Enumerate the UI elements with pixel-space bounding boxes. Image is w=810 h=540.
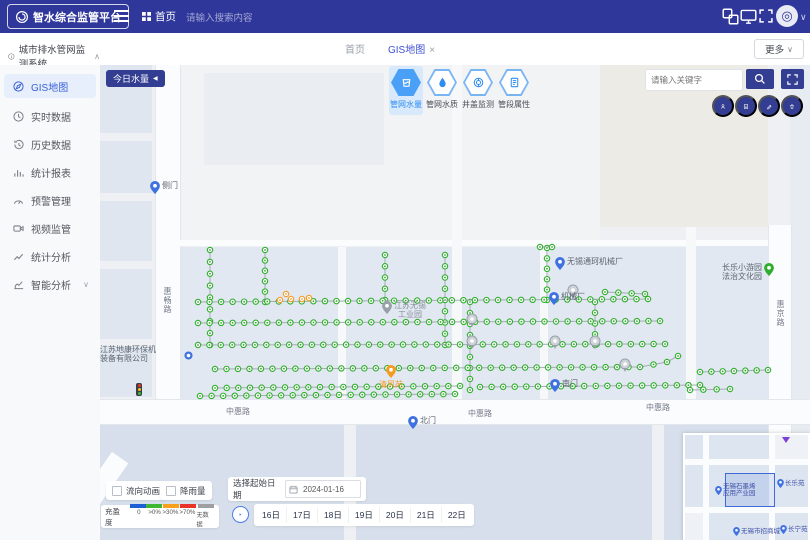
map-marker-label: 北门 <box>420 416 436 425</box>
day-button[interactable]: 16日 <box>256 507 287 523</box>
close-icon[interactable]: × <box>429 45 435 56</box>
sidebar-item-gis-map[interactable]: GIS地图 <box>4 74 96 98</box>
history-icon <box>13 139 24 150</box>
date-value-input[interactable] <box>301 484 357 495</box>
pipe-attribute-icon <box>508 76 521 89</box>
map-marker[interactable]: 清风苑 <box>379 365 403 389</box>
legend-item: 无数据 <box>196 504 215 529</box>
app-window: 智水综合监管平台 首页 请输入搜索内容 ◎ ∨ 城市排水管网监测系统 ∧ 首页 <box>0 0 810 540</box>
map-marker[interactable]: 江苏无锡工业园 <box>382 301 426 319</box>
road-label: 中惠路 <box>646 402 670 413</box>
rainfall-toggle[interactable]: 降雨量 <box>160 481 212 500</box>
play-icon <box>239 511 242 518</box>
keyword-search-input[interactable] <box>646 70 742 90</box>
info-icon <box>8 52 15 61</box>
water-level-icon <box>400 76 413 89</box>
map-marker[interactable]: 长乐小游园法治文化园 <box>722 263 774 281</box>
checkbox-icon[interactable] <box>166 486 176 496</box>
map-marker-label: 江苏无锡工业园 <box>394 301 426 319</box>
sidebar-item-statistics-analysis[interactable]: 统计分析 <box>4 244 96 268</box>
minimap-poi: 长宁苑 <box>780 525 808 534</box>
start-date-picker: 选择起始日期 <box>228 477 366 501</box>
map-block <box>709 435 769 459</box>
sidebar-item-warning-management[interactable]: 预警管理 <box>4 188 96 212</box>
map-marker[interactable]: 南门 <box>550 379 578 392</box>
map-marker-label: 清风苑 <box>379 380 403 389</box>
line-chart-icon <box>13 251 24 262</box>
sidebar-item-video-surveillance[interactable]: 视频监管 <box>4 216 96 240</box>
keyword-search-box <box>645 69 743 91</box>
minimap-poi: 长乐苑 <box>777 479 805 488</box>
road-horizontal <box>685 507 808 513</box>
checkbox-icon[interactable] <box>112 486 122 496</box>
minimap-poi: 无锡市招商城 <box>733 527 780 536</box>
sidebar-item-smart-analysis[interactable]: 智能分析 ∨ <box>4 272 96 296</box>
calendar-icon <box>289 485 298 494</box>
day-button[interactable]: 19日 <box>349 507 380 523</box>
flow-animation-toggle[interactable]: 流向动画 <box>106 481 166 500</box>
legend-item: 0 <box>130 504 146 529</box>
person-pin-icon <box>720 101 726 112</box>
sidebar-item-statistics-report[interactable]: 统计报表 <box>4 160 96 184</box>
apps-icon[interactable] <box>722 8 739 25</box>
play-timeline-button[interactable] <box>232 506 249 523</box>
map-marker-label: 南门 <box>562 379 578 388</box>
map-fullscreen-button[interactable] <box>781 69 804 89</box>
sidebar-item-realtime-data[interactable]: 实时数据 <box>4 104 96 128</box>
map-marker-label: 侧门 <box>162 181 178 190</box>
legend-item: >0% <box>146 504 162 529</box>
tab-home[interactable]: 首页 <box>345 41 365 56</box>
map-marker-label: 机械厂 <box>561 292 585 301</box>
expand-icon <box>787 74 798 85</box>
map-marker[interactable]: 北门 <box>408 416 436 429</box>
nav-home[interactable]: 首页 <box>142 9 176 24</box>
layer-manhole-monitor-button[interactable]: 井盖监测 <box>461 66 495 115</box>
edit-tool-button[interactable] <box>758 95 780 117</box>
global-search-input[interactable]: 请输入搜索内容 <box>186 10 296 24</box>
keyword-search-button[interactable] <box>746 69 774 89</box>
date-input[interactable] <box>285 480 361 498</box>
layer-toolbar: 管网水量 管网水质 井盖监测 管段属性 <box>389 66 531 115</box>
tab-bar: 城市排水管网监测系统 ∧ 首页 GIS地图× <box>0 33 810 66</box>
map-marker[interactable]: 机械厂 <box>549 292 585 305</box>
map-marker-label: 江苏地康环保机装备有限公司 <box>100 345 156 363</box>
layer-pipe-attribute-button[interactable]: 管段属性 <box>497 66 531 115</box>
logo-icon <box>15 10 29 24</box>
today-water-button[interactable]: 今日水量 <box>106 70 165 87</box>
sidebar-nav: GIS地图 实时数据 历史数据 统计报表 预警管理 视频监管 统计分析 智能分 <box>0 65 101 540</box>
gauge-alert-icon <box>13 195 24 206</box>
water-quality-icon <box>436 76 449 89</box>
map-marker[interactable]: 无锡通珂机械厂 <box>555 257 623 270</box>
menu-toggle-icon[interactable] <box>114 10 129 22</box>
map-block <box>685 465 703 507</box>
gis-map-icon <box>13 81 24 92</box>
app-logo: 智水综合监管平台 <box>7 4 129 29</box>
overview-minimap[interactable]: 无锡石墨烯应用产业园长乐苑无锡市招商城长宁苑 <box>683 433 810 540</box>
road-horizontal <box>685 459 808 465</box>
legend-item: >30% <box>162 504 179 529</box>
day-button[interactable]: 18日 <box>318 507 349 523</box>
day-button-row: 16日 17日 18日 19日 20日 21日 22日 <box>254 504 474 526</box>
road-vertical <box>703 435 709 540</box>
dashboard-icon <box>142 12 151 21</box>
delete-tool-button[interactable] <box>781 95 803 117</box>
road-label: 中惠路 <box>468 408 492 419</box>
report-tool-button[interactable] <box>735 95 757 117</box>
locate-tool-button[interactable] <box>712 95 734 117</box>
map-marker-label: 长乐小游园法治文化园 <box>722 263 762 281</box>
fullness-legend: 充盈度 0 >0% >30% >70% 无数据 <box>101 505 219 528</box>
map-block <box>685 435 703 459</box>
road-label: 中惠路 <box>226 406 250 417</box>
road-label: 惠畅路 <box>162 287 173 314</box>
edit-icon <box>766 101 772 112</box>
layer-water-quality-button[interactable]: 管网水质 <box>425 66 459 115</box>
bar-chart-icon <box>13 167 24 178</box>
layer-water-level-button[interactable]: 管网水量 <box>389 66 423 115</box>
day-button[interactable]: 20日 <box>380 507 411 523</box>
collapse-caret-icon[interactable]: ∧ <box>94 52 100 61</box>
more-button[interactable]: 更多 <box>754 39 804 59</box>
chevron-down-icon[interactable]: ∨ <box>800 12 807 23</box>
day-button[interactable]: 21日 <box>411 507 442 523</box>
fullscreen-icon[interactable] <box>759 9 773 23</box>
trash-icon <box>789 101 795 112</box>
manhole-icon <box>472 76 485 89</box>
map-marker-label: 无锡通珂机械厂 <box>567 257 623 266</box>
nav-home-label: 首页 <box>155 9 176 24</box>
smart-analysis-icon <box>13 279 24 290</box>
tab-gis-map[interactable]: GIS地图× <box>388 41 435 56</box>
sidebar-item-history-data[interactable]: 历史数据 <box>4 132 96 156</box>
gis-map-canvas[interactable]: 侧门北门南门无锡通珂机械厂机械厂长乐小游园法治文化园江苏无锡工业园清风苑江苏地康… <box>100 65 810 540</box>
clock-icon <box>13 111 24 122</box>
road-label: 惠京路 <box>775 300 786 327</box>
day-button[interactable]: 17日 <box>287 507 318 523</box>
minimap-marker-icon <box>782 437 790 443</box>
monitor-icon[interactable] <box>740 8 757 25</box>
day-button[interactable]: 22日 <box>442 507 472 523</box>
map-marker[interactable]: 江苏地康环保机装备有限公司 <box>100 345 156 363</box>
video-icon <box>13 223 24 234</box>
map-marker[interactable]: 侧门 <box>150 181 178 194</box>
logo-text: 智水综合监管平台 <box>33 9 121 25</box>
legend-item: >70% <box>179 504 196 529</box>
minimap-poi: 无锡石墨烯应用产业园 <box>715 483 756 497</box>
search-icon <box>754 73 766 85</box>
file-chart-icon <box>743 101 749 112</box>
user-avatar[interactable]: ◎ <box>776 5 798 27</box>
map-marker[interactable] <box>184 351 193 360</box>
top-navbar: 智水综合监管平台 首页 请输入搜索内容 ◎ ∨ <box>0 0 810 33</box>
chevron-down-icon[interactable]: ∨ <box>83 280 89 289</box>
